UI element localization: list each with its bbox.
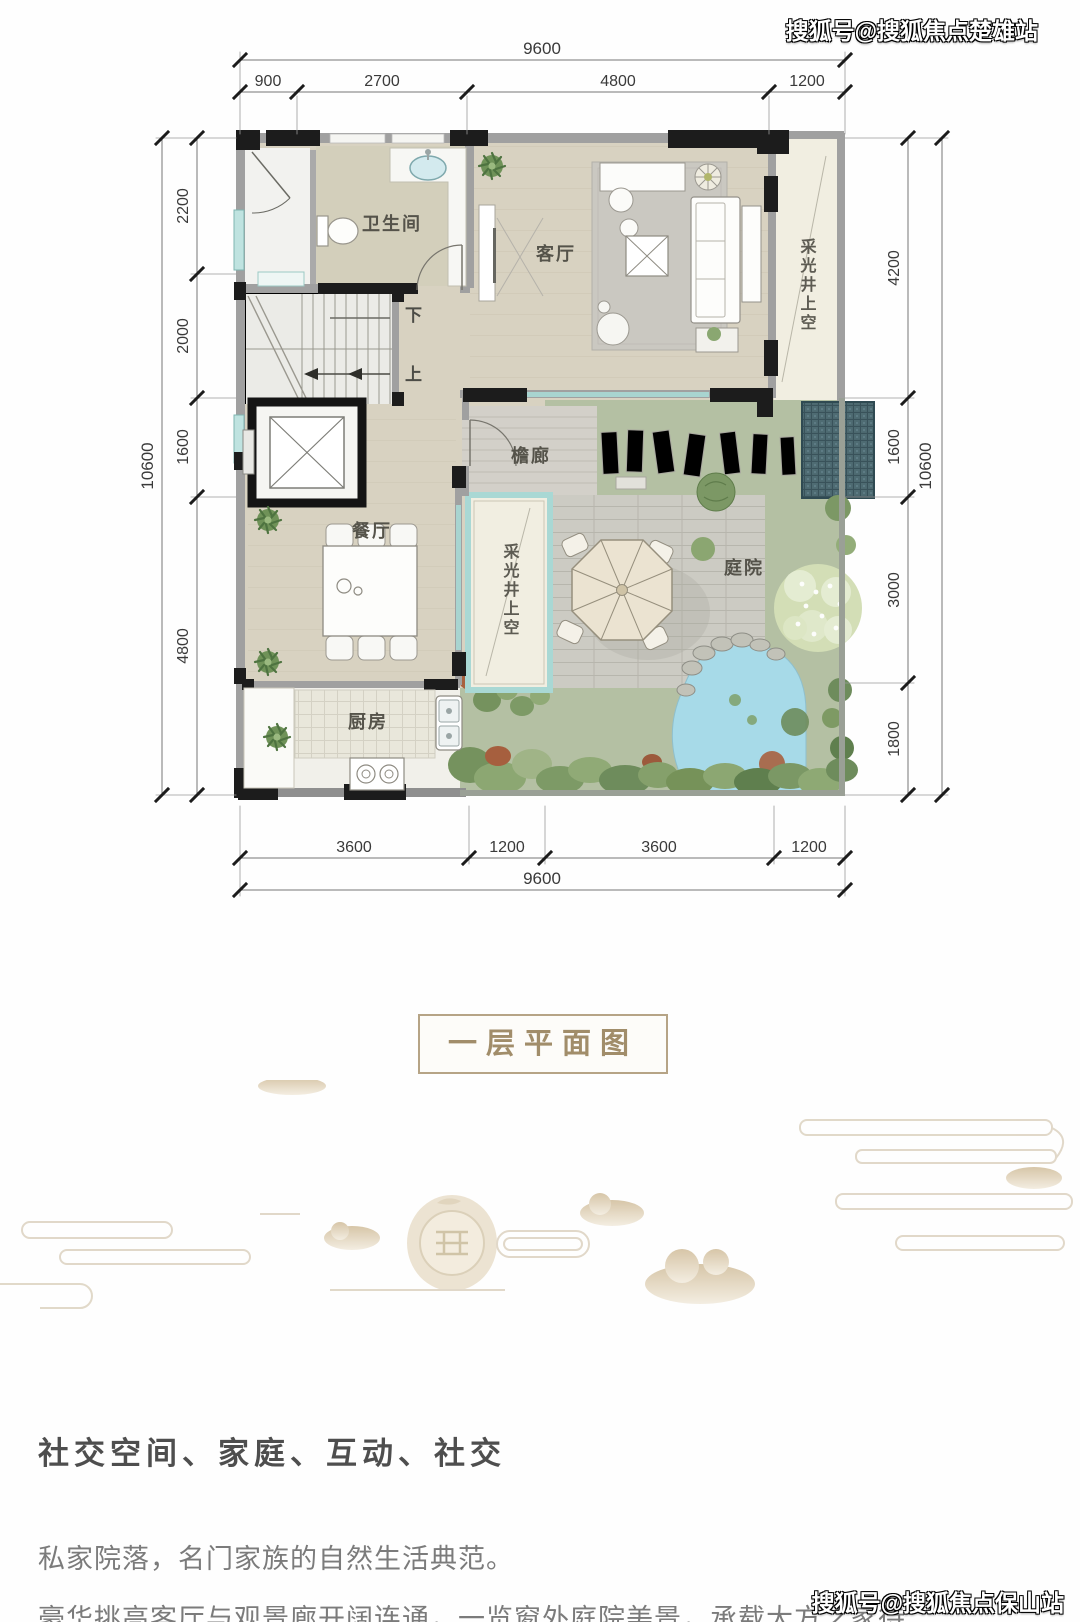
dim-left-total: 10600	[138, 442, 157, 489]
dim-top-seg2: 4800	[600, 73, 636, 90]
dining-room-label: 餐厅	[351, 520, 392, 541]
floor-plan-image: 下 上	[0, 0, 1080, 950]
medallion	[407, 1195, 497, 1291]
dim-left-seg1: 2000	[175, 318, 192, 354]
dim-bottom-seg2: 3600	[641, 839, 677, 856]
section-heading: 社交空间、家庭、互动、社交	[38, 1428, 506, 1473]
dim-bottom-total: 9600	[523, 869, 561, 888]
ceiling-light	[695, 164, 721, 190]
description-line-1: 私家院落，名门家族的自然生活典范。	[38, 1537, 514, 1576]
eaves-corridor-label: 檐廊	[511, 445, 551, 466]
dim-left-seg3: 4800	[175, 628, 192, 664]
pergola-roof	[802, 402, 874, 498]
dim-bottom-seg3: 1200	[791, 839, 827, 856]
dim-left-seg2: 1600	[175, 429, 192, 465]
dim-right-seg1: 1600	[886, 429, 903, 465]
dim-top-seg0: 900	[255, 73, 282, 90]
dim-right-seg3: 1800	[886, 721, 903, 757]
stair-down-label: 下	[405, 306, 422, 325]
stair-up-label: 上	[405, 365, 422, 384]
bathroom-label: 卫生间	[362, 213, 422, 234]
dim-top-total: 9600	[523, 39, 561, 58]
dim-bottom-seg0: 3600	[336, 839, 372, 856]
dim-right-seg2: 3000	[886, 572, 903, 608]
dim-top-seg3: 1200	[789, 73, 825, 90]
floor-lamp	[597, 313, 629, 345]
dim-bottom-seg1: 1200	[489, 839, 525, 856]
coffee-table	[626, 236, 668, 276]
watermark-top: 搜狐号@搜狐焦点楚雄站	[786, 12, 1038, 46]
kitchen-sink	[436, 696, 462, 750]
dining-table	[323, 546, 417, 636]
living-room-label: 客厅	[536, 243, 576, 264]
article-page: 下 上	[0, 0, 1080, 1622]
description-line-2: 豪华挑高客厅与观景廊开阔连通，一览窗外庭院美景，承载大方之家待	[38, 1597, 906, 1622]
courtyard-label: 庭院	[724, 557, 764, 578]
kitchen-label: 厨房	[348, 711, 388, 732]
dim-left-seg0: 2200	[175, 188, 192, 224]
elevator	[243, 402, 362, 503]
cloud-decoration	[0, 1080, 1080, 1315]
dim-top-seg1: 2700	[364, 73, 400, 90]
toilet	[317, 216, 358, 246]
stove	[350, 758, 404, 790]
media-console	[600, 163, 685, 191]
dim-right-total: 10600	[916, 442, 935, 489]
dim-right-seg0: 4200	[886, 250, 903, 286]
watermark-bottom: 搜狐号@搜狐焦点保山站	[812, 1584, 1064, 1618]
plan-title: 一层平面图	[418, 1014, 668, 1074]
